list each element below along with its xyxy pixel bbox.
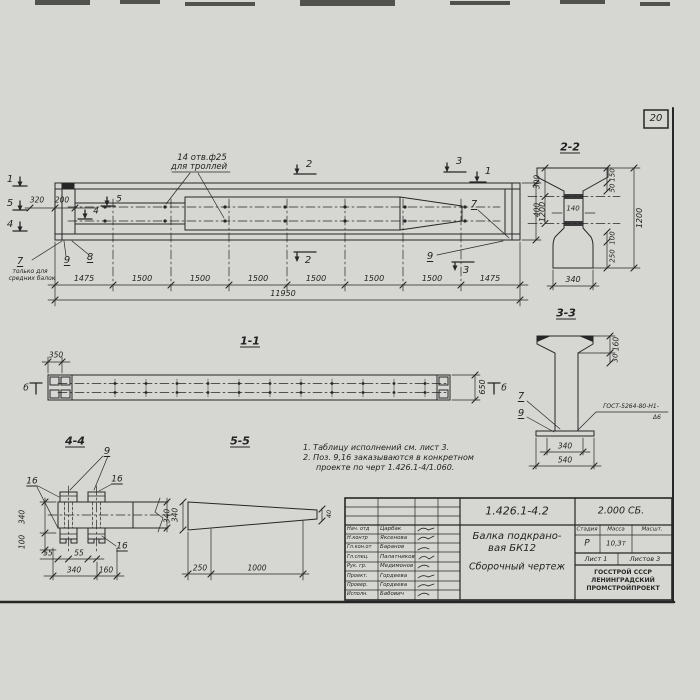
sec33-weld-note-line1: ГОСТ-5264-80-Н1- bbox=[603, 404, 659, 410]
tb-name: Бабович bbox=[380, 592, 404, 598]
note-line-2: 2. Поз. 9,16 заказываются в конкретном bbox=[303, 454, 474, 462]
plan-callout-7-right: 7 bbox=[471, 200, 477, 210]
plan-dim-320: 320 bbox=[30, 196, 44, 204]
plan-dim-segment: 1500 bbox=[248, 275, 268, 283]
plan-dim-segment: 1500 bbox=[190, 275, 210, 283]
tb-org-line3: ПРОМСТРОЙПРОЕКТ bbox=[586, 586, 659, 592]
tb-mass-header: Масса bbox=[607, 527, 625, 533]
v44-dim-55-b: 55 bbox=[74, 549, 84, 557]
section-mark-2-bottom: 2 bbox=[305, 256, 311, 266]
sec22-dim-250: 250 bbox=[610, 249, 617, 262]
tb-scale-header: Масшт. bbox=[641, 527, 662, 533]
tb-role: Рук. гр. bbox=[347, 564, 367, 569]
sec33-dim-340: 340 bbox=[558, 442, 572, 450]
tb-sheet-number: Лист 1 bbox=[585, 556, 608, 563]
section-1-1-lines bbox=[30, 357, 500, 403]
section-mark-2-top: 2 bbox=[306, 160, 312, 170]
sec11-mark-b-left: б bbox=[23, 385, 29, 394]
v55-dim-340: 340 bbox=[163, 509, 171, 523]
note-line-3: проекте по черт 1.426.1-4/1.060. bbox=[316, 464, 454, 472]
plan-view-lines bbox=[13, 163, 541, 306]
sec11-dim-650: 650 bbox=[479, 379, 487, 394]
plan-dim-segment: 1500 bbox=[364, 275, 384, 283]
tb-stage-header: Стадия bbox=[576, 527, 597, 533]
sec22-dim-100: 100 bbox=[610, 231, 617, 244]
view-4-4-lines bbox=[37, 456, 172, 580]
section-mark-3-top: 3 bbox=[456, 157, 462, 167]
tb-name: Гордеева bbox=[380, 574, 407, 580]
section-3-3-label: 3-3 bbox=[556, 308, 576, 319]
tb-org-line1: ГОССТРОЙ СССР bbox=[594, 570, 652, 576]
scan-artifacts bbox=[35, 0, 670, 6]
sec22-dim-50: 50 bbox=[610, 184, 617, 193]
sec22-dim-1200: 1200 bbox=[636, 208, 644, 228]
v55-dim-1000: 1000 bbox=[247, 564, 266, 572]
tb-name: Палатников bbox=[380, 555, 415, 561]
plan-holes-note-line2: для троллей bbox=[171, 163, 227, 172]
sec11-mark-b-right: б bbox=[501, 385, 507, 394]
plan-callout-9: 9 bbox=[64, 256, 70, 266]
plan-dim-segment: 1475 bbox=[480, 275, 500, 283]
drawing-title-line3: Сборочный чертеж bbox=[469, 562, 565, 572]
doc-code: 2.000 СБ. bbox=[598, 506, 644, 516]
tb-org-line2: ЛЕНИНГРАДСКИЙ bbox=[591, 578, 655, 584]
tb-name: Медимонов bbox=[380, 564, 413, 570]
plan-callout-9-right: 9 bbox=[427, 252, 433, 262]
v44-dim-55-a: 55 bbox=[43, 549, 53, 557]
drawing-title-line2: вая БК12 bbox=[488, 544, 536, 554]
section-mark-4-left: 4 bbox=[7, 220, 13, 230]
v44-dim-160: 160 bbox=[99, 566, 113, 574]
plan-callout-7: 7 bbox=[17, 257, 23, 267]
sec11-dim-350: 350 bbox=[49, 351, 63, 359]
view-5-5-label: 5-5 bbox=[230, 436, 250, 447]
section-1-1-label: 1-1 bbox=[240, 336, 260, 347]
plan-dim-segment: 1475 bbox=[74, 275, 94, 283]
v44-dim-100: 100 bbox=[18, 535, 26, 549]
drawing-title-line1: Балка подкрано- bbox=[472, 532, 561, 542]
v44-dim-340-left: 340 bbox=[18, 510, 26, 524]
tb-sheets-total: Листов 3 bbox=[630, 556, 660, 563]
tb-role: Исполн. bbox=[347, 592, 368, 597]
plan-dim-total: 11950 bbox=[270, 290, 295, 298]
section-mark-1-left: 1 bbox=[7, 175, 13, 185]
tb-role: Гл.кон.от bbox=[347, 545, 371, 550]
plan-dim-200: 200 bbox=[55, 196, 69, 204]
section-mark-4-inner: 4 bbox=[93, 208, 99, 217]
section-mark-1-right: 1 bbox=[485, 167, 491, 177]
v44-callout-16-left: 16 bbox=[26, 478, 37, 487]
sec22-dim-140: 140 bbox=[566, 206, 579, 213]
sec33-dim-540: 540 bbox=[558, 456, 572, 464]
drawing-sheet: 20 14 отв.ф25 для троллей 1 5 4 2 3 1 5 … bbox=[0, 0, 700, 700]
tb-name: Баранов bbox=[380, 545, 404, 551]
plan-dim-segment: 1500 bbox=[306, 275, 326, 283]
tb-stage-value: Р bbox=[584, 540, 589, 549]
v55-dim-40: 40 bbox=[326, 510, 333, 518]
tb-name: Царбак bbox=[380, 527, 401, 533]
v44-callout-16-bottom: 16 bbox=[116, 543, 127, 552]
tb-name: Гордеева bbox=[380, 583, 407, 589]
plan-dim-segment: 1500 bbox=[422, 275, 442, 283]
tb-mass-value: 10,3т bbox=[606, 541, 626, 548]
sec33-dim-30: 30 bbox=[613, 354, 620, 363]
section-2-2-lines bbox=[528, 165, 640, 290]
section-2-2-label: 2-2 bbox=[560, 142, 580, 153]
sec33-callout-7: 7 bbox=[518, 392, 524, 402]
plan-dim-segment: 1500 bbox=[132, 275, 152, 283]
section-mark-5-inner: 5 bbox=[116, 196, 122, 205]
v44-dim-340-right: 340 bbox=[171, 508, 179, 522]
view-4-4-label: 4-4 bbox=[65, 436, 85, 447]
section-3-3-lines bbox=[527, 333, 668, 469]
v55-dim-250: 250 bbox=[193, 564, 207, 572]
tb-role: Нач. отд bbox=[347, 527, 369, 532]
sec22-dim-150: 150 bbox=[610, 168, 617, 181]
v44-callout-16-right: 16 bbox=[111, 476, 122, 485]
doc-number: 1.426.1-4.2 bbox=[485, 506, 548, 517]
section-mark-5-left: 5 bbox=[7, 199, 13, 209]
section-mark-3-bottom: 3 bbox=[463, 266, 469, 276]
note-line-1: 1. Таблицу исполнений см. лист 3. bbox=[303, 444, 449, 452]
sec33-callout-9: 9 bbox=[518, 409, 524, 419]
v44-callout-9: 9 bbox=[104, 447, 110, 457]
page-number: 20 bbox=[650, 114, 663, 124]
sec22-dim-340: 340 bbox=[565, 276, 580, 284]
plan-callout-8: 8 bbox=[87, 253, 93, 263]
sec33-weld-note-line2: Δ6 bbox=[653, 415, 661, 421]
plan-left-note-line2: средних балок bbox=[9, 276, 56, 282]
sec22-dim-400: 400 bbox=[533, 203, 541, 217]
tb-role: Провер. bbox=[347, 583, 368, 588]
v44-dim-340-bottom: 340 bbox=[67, 566, 81, 574]
tb-name: Яксенова bbox=[380, 536, 407, 542]
sec33-dim-160: 160 bbox=[612, 337, 620, 351]
sec22-dim-300: 300 bbox=[533, 175, 541, 189]
tb-role: Гл.спец. bbox=[347, 555, 369, 560]
tb-role: Проект. bbox=[347, 574, 368, 579]
tb-role: Н.контр bbox=[347, 536, 368, 541]
